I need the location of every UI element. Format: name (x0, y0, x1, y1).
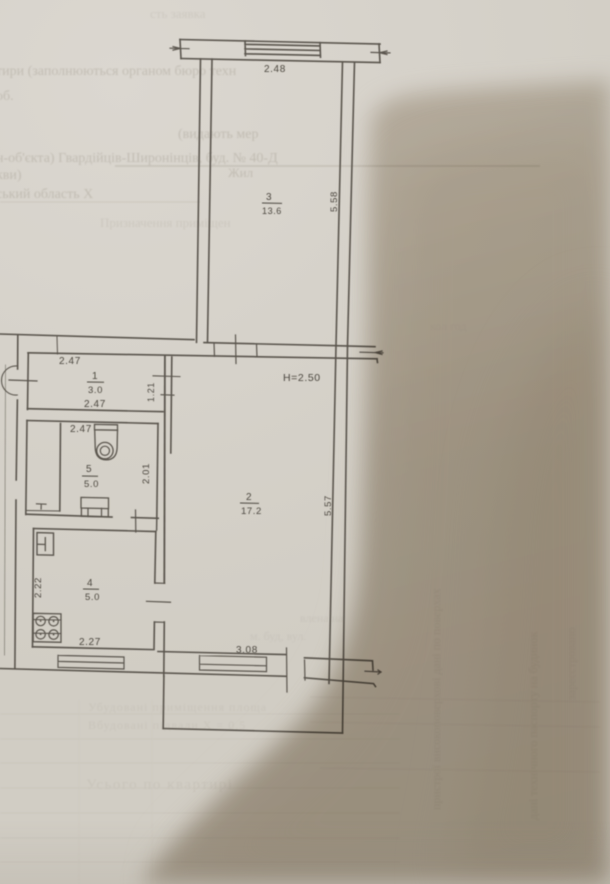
svg-text:13.6: 13.6 (262, 206, 282, 216)
svg-text:н-об'єкта) Гвардійців-Широнін: н-об'єкта) Гвардійців-Широнінців, буд. №… (0, 151, 278, 166)
svg-text:2.47: 2.47 (70, 424, 92, 435)
svg-text:2.27: 2.27 (79, 637, 101, 648)
svg-text:2.47: 2.47 (84, 399, 106, 410)
svg-text:5.57: 5.57 (323, 495, 334, 516)
svg-text:(видають мер: (видають мер (178, 127, 258, 142)
svg-text:3.08: 3.08 (236, 645, 258, 656)
svg-text:ський область Х: ський область Х (0, 187, 93, 202)
svg-text:Призначення приміщен: Призначення приміщен (100, 215, 231, 230)
svg-text:1.21: 1.21 (146, 382, 156, 402)
svg-text:2: 2 (246, 492, 252, 503)
svg-text:сть заявка: сть заявка (150, 6, 206, 21)
svg-text:влена на: влена на (300, 611, 344, 625)
svg-text:2.01: 2.01 (141, 463, 152, 484)
svg-text:5.0: 5.0 (84, 479, 99, 490)
svg-text:об.: об. (0, 89, 14, 104)
svg-text:5.0: 5.0 (85, 592, 100, 603)
svg-text:4: 4 (87, 578, 93, 589)
svg-text:3: 3 (266, 192, 272, 203)
svg-text:тири (заполнюються органом бю: тири (заполнюються органом бюро техн (0, 64, 237, 79)
svg-text:м. буд, вул.: м. буд, вул. (250, 629, 306, 643)
svg-text:2.22: 2.22 (33, 577, 44, 598)
svg-text:5: 5 (86, 464, 92, 475)
svg-text:2.47: 2.47 (59, 356, 81, 367)
svg-text:Жил: Жил (228, 165, 254, 180)
svg-text:H=2.50: H=2.50 (283, 372, 321, 384)
svg-text:1: 1 (92, 371, 98, 382)
svg-text:Убудовані приміщення площа: Убудовані приміщення площа (88, 700, 267, 714)
svg-text:зареєстровано: зареєстровано (564, 627, 578, 700)
svg-text:5.58: 5.58 (329, 191, 340, 212)
svg-text:кви): кви) (0, 168, 22, 183)
svg-text:17.2: 17.2 (241, 506, 262, 517)
svg-text:3.0: 3.0 (88, 385, 103, 396)
svg-text:Усього по квартирі: Усього по квартирі (86, 777, 234, 793)
svg-text:2.48: 2.48 (264, 64, 286, 75)
